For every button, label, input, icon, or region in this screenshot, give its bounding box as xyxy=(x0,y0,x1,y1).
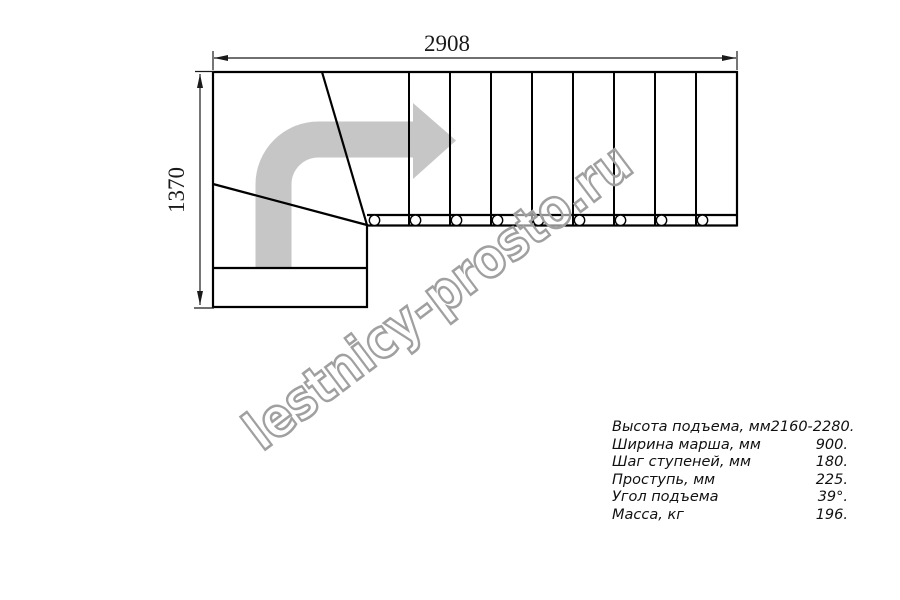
staircase-drawing-page: 2908 1370 lestnicy-prosto.ru Высота подъ… xyxy=(0,0,900,600)
left-dim-arrow-bottom xyxy=(197,291,203,305)
spec-value: 180. xyxy=(816,454,848,472)
spec-label: Ширина марша, мм xyxy=(612,437,761,455)
baluster-circle xyxy=(656,215,666,225)
watermark: lestnicy-prosto.ru xyxy=(232,130,644,462)
direction-arrow xyxy=(274,103,457,268)
spec-row-angle: Угол подъема 39°. xyxy=(612,489,848,507)
top-dim-arrow-left xyxy=(214,55,228,61)
top-dimension: 2908 xyxy=(213,31,737,70)
baluster-circle xyxy=(615,215,625,225)
spec-row-height: Высота подъема, мм 2160-2280. xyxy=(612,419,848,437)
spec-label: Угол подъема xyxy=(612,489,719,507)
top-dim-arrow-right xyxy=(722,55,736,61)
left-dimension: 1370 xyxy=(164,72,214,309)
spec-value: 900. xyxy=(816,437,848,455)
specs-table: Высота подъема, мм 2160-2280. Ширина мар… xyxy=(612,419,848,524)
spec-label: Высота подъема, мм xyxy=(612,419,771,437)
spec-row-tread-depth: Проступь, мм 225. xyxy=(612,472,848,490)
spec-row-flight-width: Ширина марша, мм 900. xyxy=(612,437,848,455)
spec-value: 225. xyxy=(816,472,848,490)
baluster-circle xyxy=(369,215,379,225)
baluster-circle xyxy=(697,215,707,225)
baluster-circle xyxy=(410,215,420,225)
spec-row-step-rise: Шаг ступеней, мм 180. xyxy=(612,454,848,472)
spec-label: Масса, кг xyxy=(612,507,684,525)
left-dim-arrow-top xyxy=(197,74,203,88)
spec-label: Проступь, мм xyxy=(612,472,715,490)
direction-arrow-body xyxy=(274,140,415,268)
spec-label: Шаг ступеней, мм xyxy=(612,454,751,472)
spec-row-mass: Масса, кг 196. xyxy=(612,507,848,525)
baluster-circle xyxy=(451,215,461,225)
spec-value: 2160-2280. xyxy=(771,419,855,437)
spec-value: 196. xyxy=(816,507,848,525)
spec-value: 39°. xyxy=(818,489,848,507)
left-dimension-label: 1370 xyxy=(164,167,189,213)
top-dimension-label: 2908 xyxy=(424,31,470,56)
